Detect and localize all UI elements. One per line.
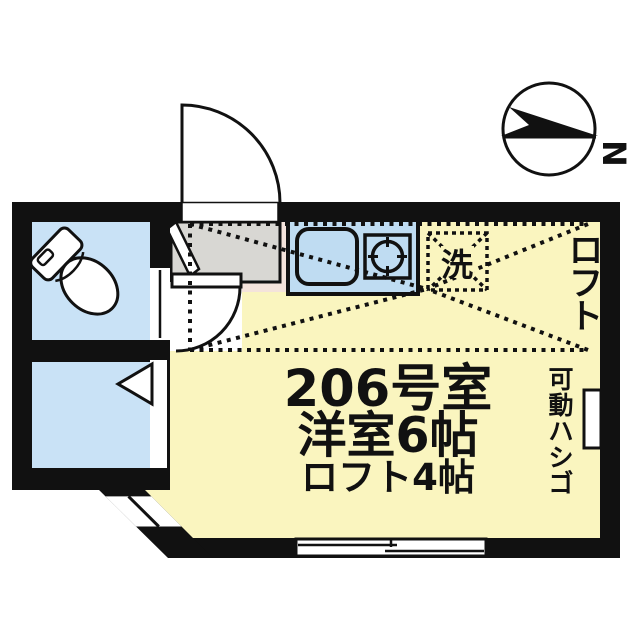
kitchen-counter	[288, 220, 418, 294]
floor-plan-drawing: N	[0, 0, 640, 640]
interior-door-panel	[172, 274, 241, 287]
toilet-door	[150, 268, 170, 340]
wall-bathroom-bottom	[12, 468, 170, 490]
loft-vertical-label: ロフト	[569, 231, 603, 337]
wall-top-right	[278, 202, 620, 222]
wall-top-left	[12, 202, 182, 222]
floor-plan-page: N	[0, 0, 640, 640]
window-bottom	[296, 539, 486, 556]
wall-toilet-bathroom	[12, 340, 170, 362]
washer-label: 洗	[441, 246, 473, 284]
ladder-vertical-label: 可動ハシゴ	[548, 365, 573, 498]
compass-north-label: N	[595, 140, 633, 167]
wall-right	[600, 202, 620, 558]
ladder	[584, 390, 601, 448]
front-door-threshold	[182, 203, 278, 222]
loft-size-label: ロフト4帖	[301, 456, 475, 499]
